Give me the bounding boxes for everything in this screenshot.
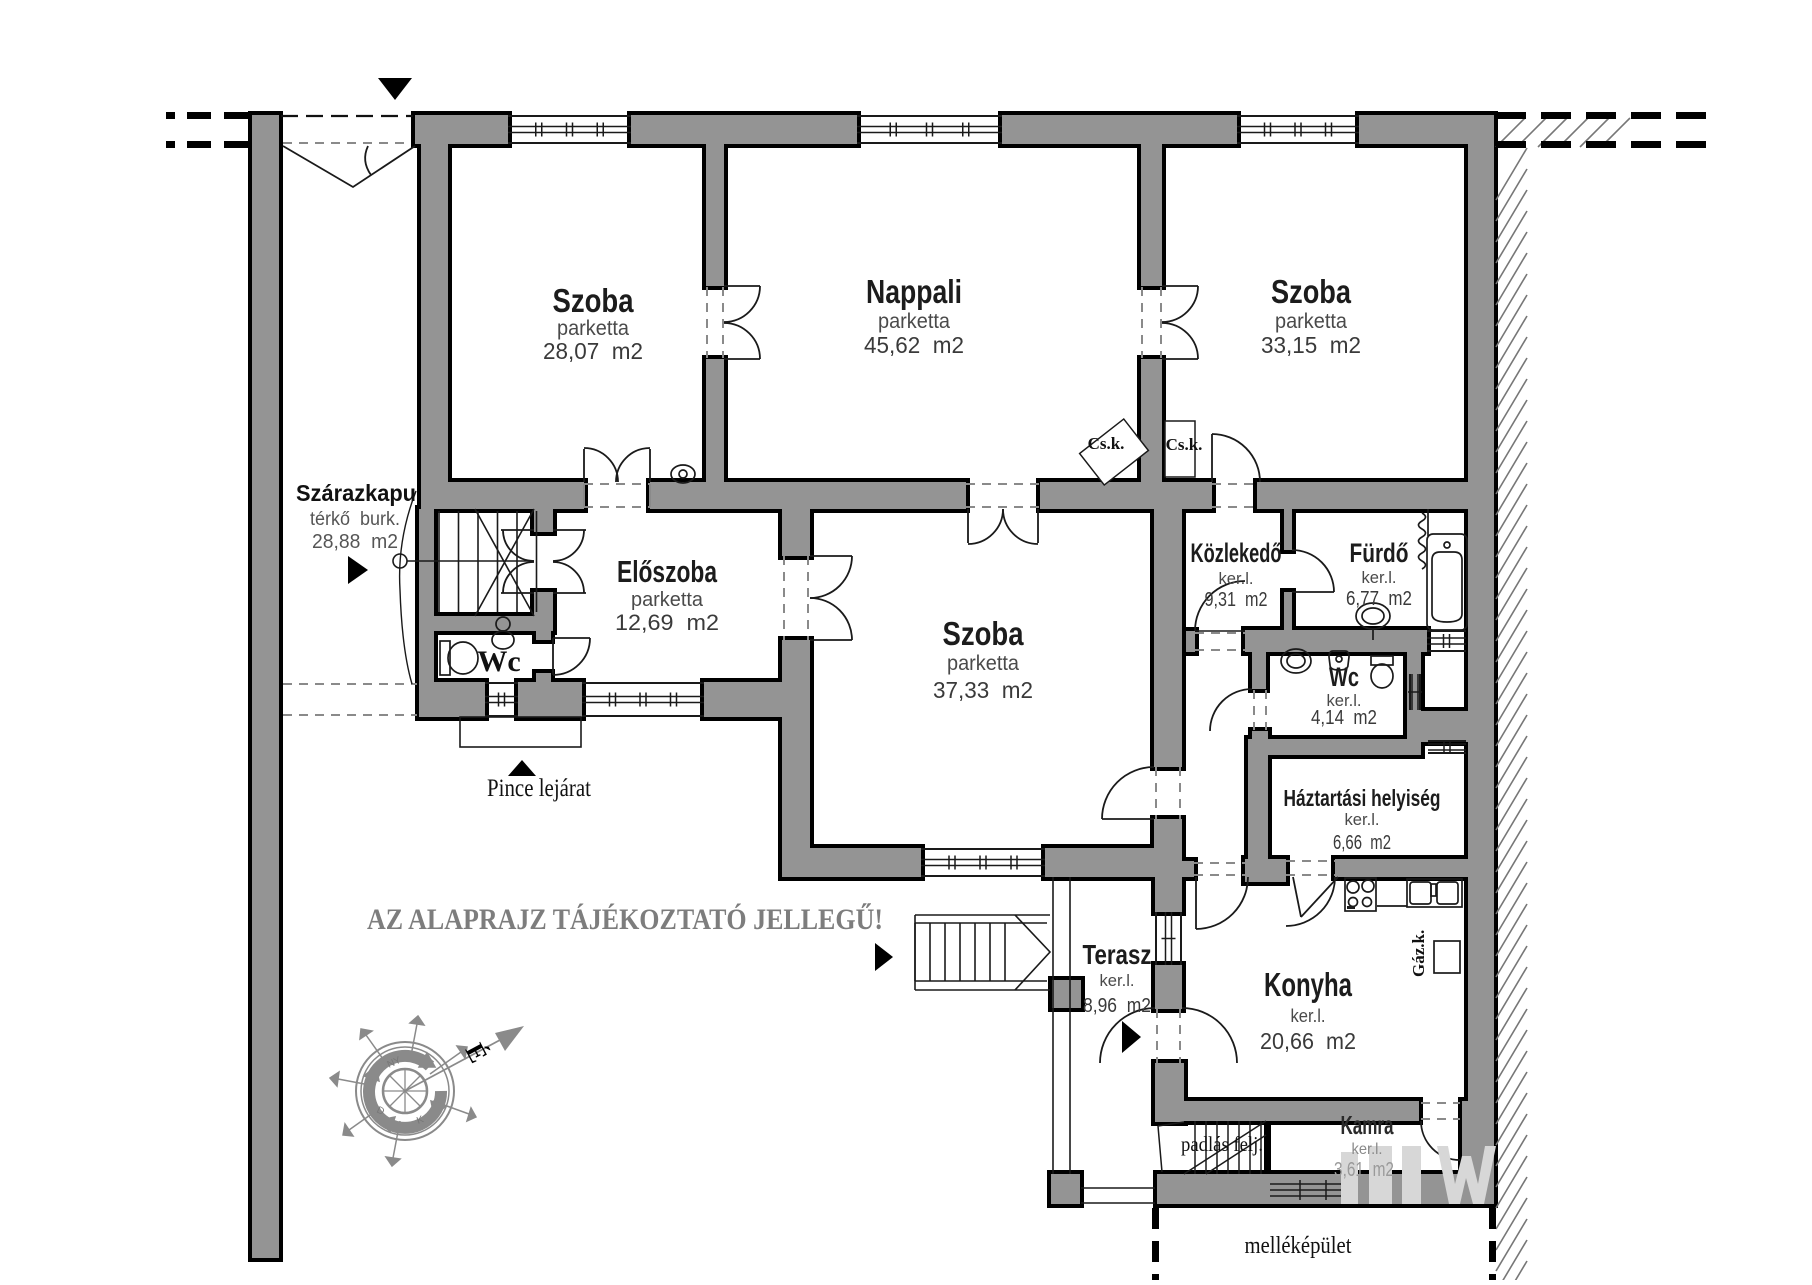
svg-text:Előszoba: Előszoba bbox=[617, 554, 718, 589]
svg-text:6,66 m2: 6,66 m2 bbox=[1333, 832, 1391, 854]
svg-text:Fürdő: Fürdő bbox=[1350, 538, 1409, 568]
svg-text:Szoba: Szoba bbox=[943, 615, 1025, 652]
svg-text:Cs.k.: Cs.k. bbox=[1166, 435, 1203, 454]
svg-text:térkő burk.: térkő burk. bbox=[310, 509, 400, 530]
svg-text:Közlekedő: Közlekedő bbox=[1191, 538, 1282, 568]
svg-text:ker.l.: ker.l. bbox=[1219, 569, 1254, 588]
svg-text:3,61 m2: 3,61 m2 bbox=[1334, 1159, 1394, 1181]
svg-text:parketta: parketta bbox=[878, 310, 950, 333]
svg-text:Konyha: Konyha bbox=[1264, 966, 1352, 1003]
svg-text:ker.l.: ker.l. bbox=[1291, 1006, 1326, 1026]
svg-text:ker.l.: ker.l. bbox=[1345, 810, 1380, 829]
svg-text:9,31 m2: 9,31 m2 bbox=[1205, 589, 1268, 611]
svg-text:Pince lejárat: Pince lejárat bbox=[487, 775, 591, 802]
svg-text:Nappali: Nappali bbox=[866, 273, 962, 310]
svg-text:Terasz: Terasz bbox=[1083, 939, 1152, 970]
svg-text:Gáz.k.: Gáz.k. bbox=[1409, 930, 1428, 977]
svg-text:AZ ALAPRAJZ TÁJÉKOZTATÓ JELLEG: AZ ALAPRAJZ TÁJÉKOZTATÓ JELLEGŰ! bbox=[367, 903, 883, 936]
svg-text:12,69 m2: 12,69 m2 bbox=[615, 610, 719, 635]
svg-text:ker.l.: ker.l. bbox=[1362, 568, 1397, 587]
svg-text:6,77 m2: 6,77 m2 bbox=[1346, 588, 1412, 610]
svg-text:melléképület: melléképület bbox=[1245, 1233, 1352, 1259]
svg-text:Wc: Wc bbox=[1329, 662, 1359, 692]
svg-text:45,62 m2: 45,62 m2 bbox=[864, 332, 964, 358]
svg-text:28,88 m2: 28,88 m2 bbox=[312, 531, 398, 553]
svg-text:20,66 m2: 20,66 m2 bbox=[1260, 1028, 1356, 1054]
svg-text:8,96 m2: 8,96 m2 bbox=[1083, 995, 1151, 1017]
svg-text:Cs.k.: Cs.k. bbox=[1088, 434, 1125, 453]
svg-text:Háztartási helyiség: Háztartási helyiség bbox=[1284, 785, 1441, 811]
svg-text:parketta: parketta bbox=[947, 652, 1019, 675]
svg-text:Szárazkapu: Szárazkapu bbox=[296, 480, 416, 506]
svg-text:4,14 m2: 4,14 m2 bbox=[1311, 707, 1377, 729]
svg-text:ker.l.: ker.l. bbox=[1100, 971, 1135, 990]
svg-text:Szoba: Szoba bbox=[1271, 273, 1352, 310]
svg-text:Szoba: Szoba bbox=[553, 282, 635, 319]
svg-text:ker.l.: ker.l. bbox=[1352, 1141, 1383, 1158]
svg-text:37,33 m2: 37,33 m2 bbox=[933, 677, 1033, 703]
svg-text:Wc: Wc bbox=[477, 645, 520, 678]
svg-text:Kamra: Kamra bbox=[1341, 1110, 1394, 1140]
svg-text:padlás felj.: padlás felj. bbox=[1181, 1132, 1263, 1156]
svg-text:33,15 m2: 33,15 m2 bbox=[1261, 332, 1361, 358]
svg-text:parketta: parketta bbox=[1275, 310, 1347, 333]
svg-text:28,07 m2: 28,07 m2 bbox=[543, 338, 643, 364]
svg-text:parketta: parketta bbox=[631, 589, 704, 611]
svg-text:parketta: parketta bbox=[557, 317, 629, 340]
